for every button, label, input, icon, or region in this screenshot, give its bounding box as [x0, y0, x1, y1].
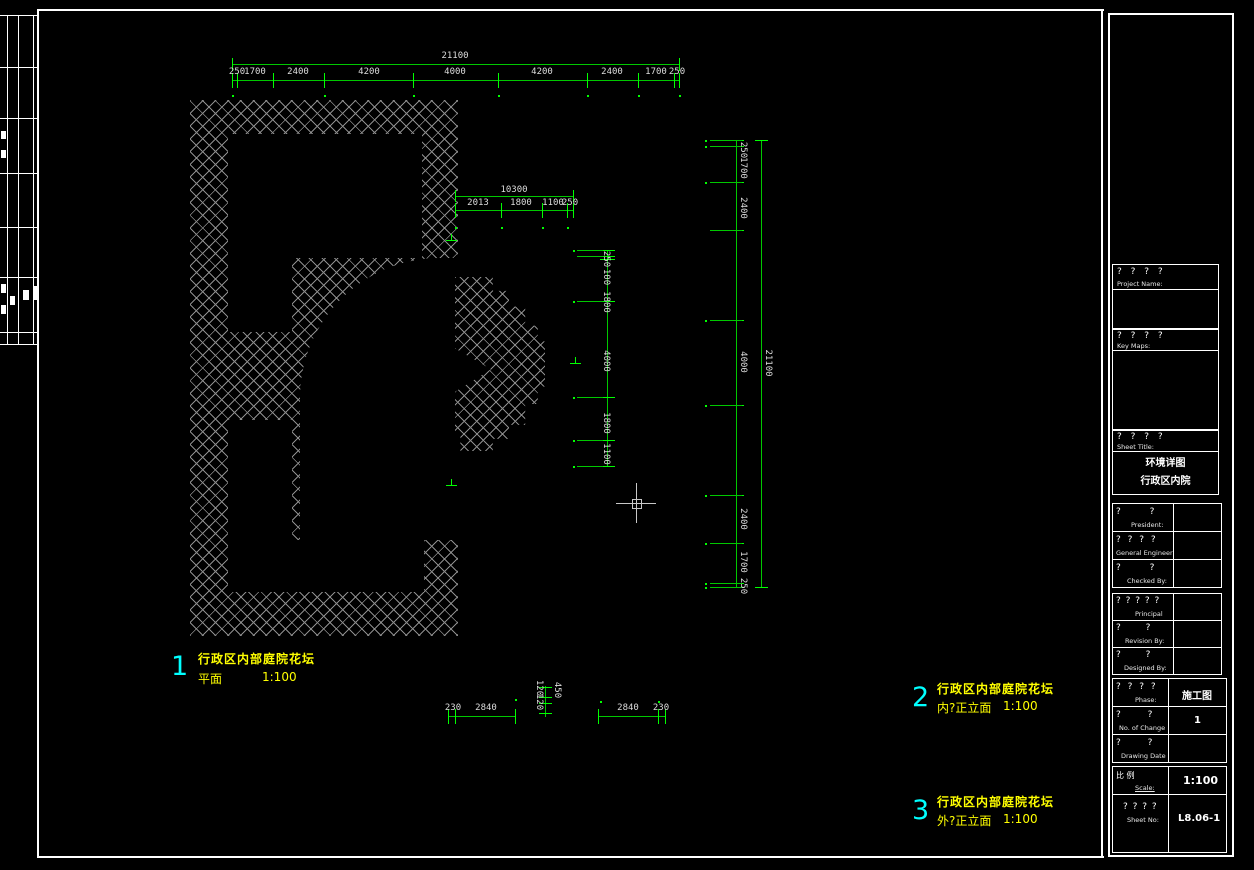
sheet-number-value: L8.06-1 — [1178, 813, 1220, 824]
callout-number: 3 — [912, 797, 929, 825]
sheet-title-line2: 行政区内院 — [1113, 473, 1218, 490]
key-maps-box: ? ? ? ? Key Maps: — [1112, 329, 1219, 351]
illegible-glyph — [10, 296, 15, 305]
callout-title: 行政区内部庭院花坛 — [198, 650, 315, 667]
callout-number: 2 — [912, 684, 929, 712]
plan-cutout-bottom-bar — [228, 540, 424, 592]
sheet-title-line1: 环境详图 — [1113, 455, 1218, 472]
illegible-glyph — [1, 305, 6, 314]
callout-title: 行政区内部庭院花坛 — [937, 680, 1054, 697]
cad-viewport: 21100 250 1700 2400 4200 4000 4200 2400 … — [0, 0, 1254, 870]
frame-right-line — [1101, 9, 1103, 858]
change-number-value: 1 — [1194, 715, 1201, 726]
plan-cutout-top-leg — [228, 134, 292, 332]
callout-scale: 1:100 — [262, 670, 297, 684]
callout-subtitle: 内?正立面 — [937, 699, 991, 716]
key-maps-value-box — [1112, 350, 1219, 430]
dim-label: 21100 — [441, 51, 468, 61]
callout-title: 行政区内部庭院花坛 — [937, 793, 1054, 810]
frame-left-line — [37, 9, 39, 858]
project-name-box: ? ? ? ? Project Name: — [1112, 264, 1219, 290]
callout-subtitle: 平面 — [198, 670, 222, 687]
plan-hatch-right-wing — [455, 277, 545, 451]
dim-label: 21100 — [763, 349, 773, 376]
callout-scale: 1:100 — [1003, 699, 1038, 713]
illegible-glyph — [1, 150, 6, 158]
illegible-glyph — [34, 286, 37, 300]
sheet-title-box: ? ? ? ? Sheet Title: — [1112, 430, 1219, 452]
illegible-glyph — [1, 131, 6, 139]
frame-bottom-line — [38, 856, 1104, 858]
illegible-glyph — [1, 284, 6, 293]
sheet-title-value-box: 环境详图 行政区内院 — [1112, 451, 1219, 495]
title-block: ? ? ? ? Project Name: ? ? ? ? Key Maps: … — [1108, 13, 1234, 857]
scale-value: 1:100 — [1183, 774, 1218, 787]
phase-value: 施工图 — [1182, 687, 1212, 702]
project-name-value-box — [1112, 289, 1219, 329]
frame-top-line — [38, 9, 1104, 11]
illegible-glyph — [23, 290, 29, 300]
callout-number: 1 — [171, 653, 188, 681]
callout-subtitle: 外?正立面 — [937, 812, 991, 829]
callout-scale: 1:100 — [1003, 812, 1038, 826]
dim-label: 10300 — [500, 185, 527, 195]
